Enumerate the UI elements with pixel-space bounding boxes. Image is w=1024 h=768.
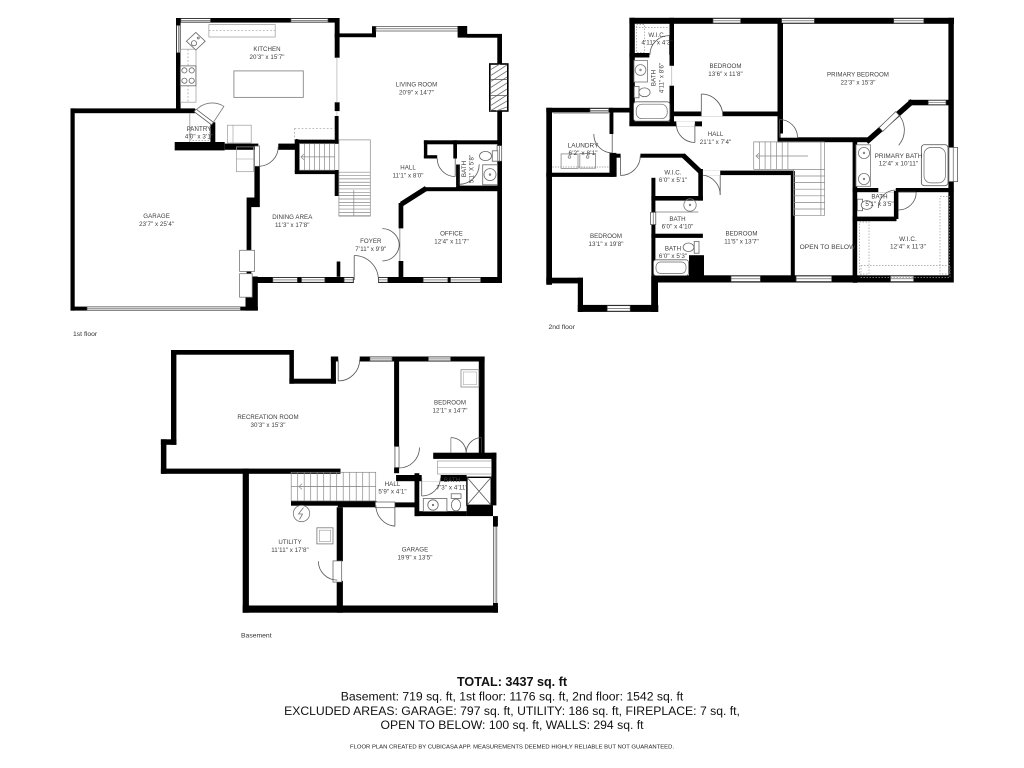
svg-text:W.I.C.: W.I.C. <box>664 170 681 177</box>
svg-text:2nd floor: 2nd floor <box>549 324 576 331</box>
svg-text:6’0" x 5’1": 6’0" x 5’1" <box>659 177 687 184</box>
svg-text:TOTAL: 3437 sq. ft: TOTAL: 3437 sq. ft <box>457 675 568 689</box>
svg-text:12’4" x 11’3": 12’4" x 11’3" <box>890 244 927 251</box>
svg-text:RECREATION ROOM: RECREATION ROOM <box>237 414 298 421</box>
svg-text:BEDROOM: BEDROOM <box>590 233 622 240</box>
svg-text:21’1" x 7’4": 21’1" x 7’4" <box>700 139 731 146</box>
svg-text:7’11" x 9’9": 7’11" x 9’9" <box>355 246 386 253</box>
svg-text:4’0" x 3’1": 4’0" x 3’1" <box>185 134 213 141</box>
svg-text:5’1" X 5’8": 5’1" X 5’8" <box>470 155 476 183</box>
svg-text:Basement: Basement <box>241 633 272 640</box>
svg-text:OPEN TO BELOW: 100 sq. ft, WAL: OPEN TO BELOW: 100 sq. ft, WALLS: 294 sq… <box>380 718 644 732</box>
svg-text:19’9" x 13’5": 19’9" x 13’5" <box>398 554 433 561</box>
svg-text:13’6" x 11’8": 13’6" x 11’8" <box>708 71 743 78</box>
svg-text:W.I.C.: W.I.C. <box>648 32 665 39</box>
svg-text:BEDROOM: BEDROOM <box>709 63 741 70</box>
svg-text:LAUNDRY: LAUNDRY <box>568 143 599 150</box>
svg-text:UTILITY: UTILITY <box>278 539 301 546</box>
svg-text:OFFICE: OFFICE <box>440 231 463 238</box>
svg-text:PRIMARY BEDROOM: PRIMARY BEDROOM <box>827 72 889 79</box>
svg-text:BATH: BATH <box>665 246 681 253</box>
svg-text:11’3" x 17’8": 11’3" x 17’8" <box>275 222 310 229</box>
svg-text:KITCHEN: KITCHEN <box>253 46 280 53</box>
svg-text:FLOOR PLAN CREATED BY CUBICASA: FLOOR PLAN CREATED BY CUBICASA APP. MEAS… <box>350 745 674 751</box>
svg-text:BEDROOM: BEDROOM <box>725 231 757 238</box>
svg-text:13’1" x 19’8": 13’1" x 19’8" <box>589 241 624 248</box>
svg-text:GARAGE: GARAGE <box>143 213 170 220</box>
svg-text:4’11" x 4’3": 4’11" x 4’3" <box>641 39 672 46</box>
svg-text:BATH: BATH <box>669 216 685 223</box>
svg-text:20’9" x 14’7": 20’9" x 14’7" <box>399 89 434 96</box>
svg-text:12’1" x 14’7": 12’1" x 14’7" <box>433 407 468 414</box>
svg-text:30’3" x 15’3": 30’3" x 15’3" <box>251 422 286 429</box>
svg-text:W.I.C.: W.I.C. <box>899 236 917 243</box>
svg-text:OPEN TO BELOW: OPEN TO BELOW <box>800 244 856 251</box>
svg-text:12’4" x 11’7": 12’4" x 11’7" <box>434 238 469 245</box>
svg-text:5’9" x 4’1": 5’9" x 4’1" <box>378 488 406 495</box>
svg-text:BEDROOM: BEDROOM <box>434 400 466 407</box>
svg-text:11’11" x 17’8": 11’11" x 17’8" <box>271 547 309 554</box>
svg-text:HALL: HALL <box>385 481 401 488</box>
svg-text:GARAGE: GARAGE <box>402 547 429 554</box>
svg-text:LIVING ROOM: LIVING ROOM <box>396 82 438 89</box>
svg-text:4’11" x 8’6": 4’11" x 8’6" <box>660 63 666 93</box>
svg-text:22’3" x 15’3": 22’3" x 15’3" <box>841 79 876 86</box>
svg-text:PRIMARY BATH: PRIMARY BATH <box>875 153 923 160</box>
svg-text:HALL: HALL <box>708 131 724 138</box>
svg-text:6’2" x 8’1": 6’2" x 8’1" <box>568 150 598 157</box>
svg-text:12’4" x 10’11": 12’4" x 10’11" <box>879 161 919 168</box>
svg-text:6’0" x 5’3": 6’0" x 5’3" <box>659 253 687 260</box>
svg-text:11’1" x 8’0": 11’1" x 8’0" <box>392 172 423 179</box>
svg-text:7’3" x 4’11": 7’3" x 4’11" <box>436 484 467 491</box>
svg-text:BATH: BATH <box>871 194 887 201</box>
svg-text:20’3" x 15’7": 20’3" x 15’7" <box>250 54 285 61</box>
svg-text:1st floor: 1st floor <box>73 331 98 338</box>
svg-text:23’7" x 25’4": 23’7" x 25’4" <box>139 221 174 228</box>
svg-text:HALL: HALL <box>400 165 416 172</box>
svg-text:PANTRY: PANTRY <box>187 126 212 133</box>
svg-text:BATH: BATH <box>461 161 468 177</box>
svg-text:6’0" x 4’10": 6’0" x 4’10" <box>662 223 694 230</box>
svg-text:BATH: BATH <box>444 477 460 484</box>
svg-text:BATH: BATH <box>651 70 658 86</box>
svg-text:5’1" x 3’5": 5’1" x 3’5" <box>865 201 893 208</box>
svg-text:Basement: 719 sq. ft, 1st floo: Basement: 719 sq. ft, 1st floor: 1176 sq… <box>341 690 684 704</box>
svg-text:11’5" x 13’7": 11’5" x 13’7" <box>724 238 759 245</box>
svg-text:EXCLUDED AREAS: GARAGE: 797 sq: EXCLUDED AREAS: GARAGE: 797 sq. ft, UTIL… <box>284 704 740 718</box>
svg-text:FOYER: FOYER <box>360 238 382 245</box>
svg-text:DINING AREA: DINING AREA <box>272 214 313 221</box>
